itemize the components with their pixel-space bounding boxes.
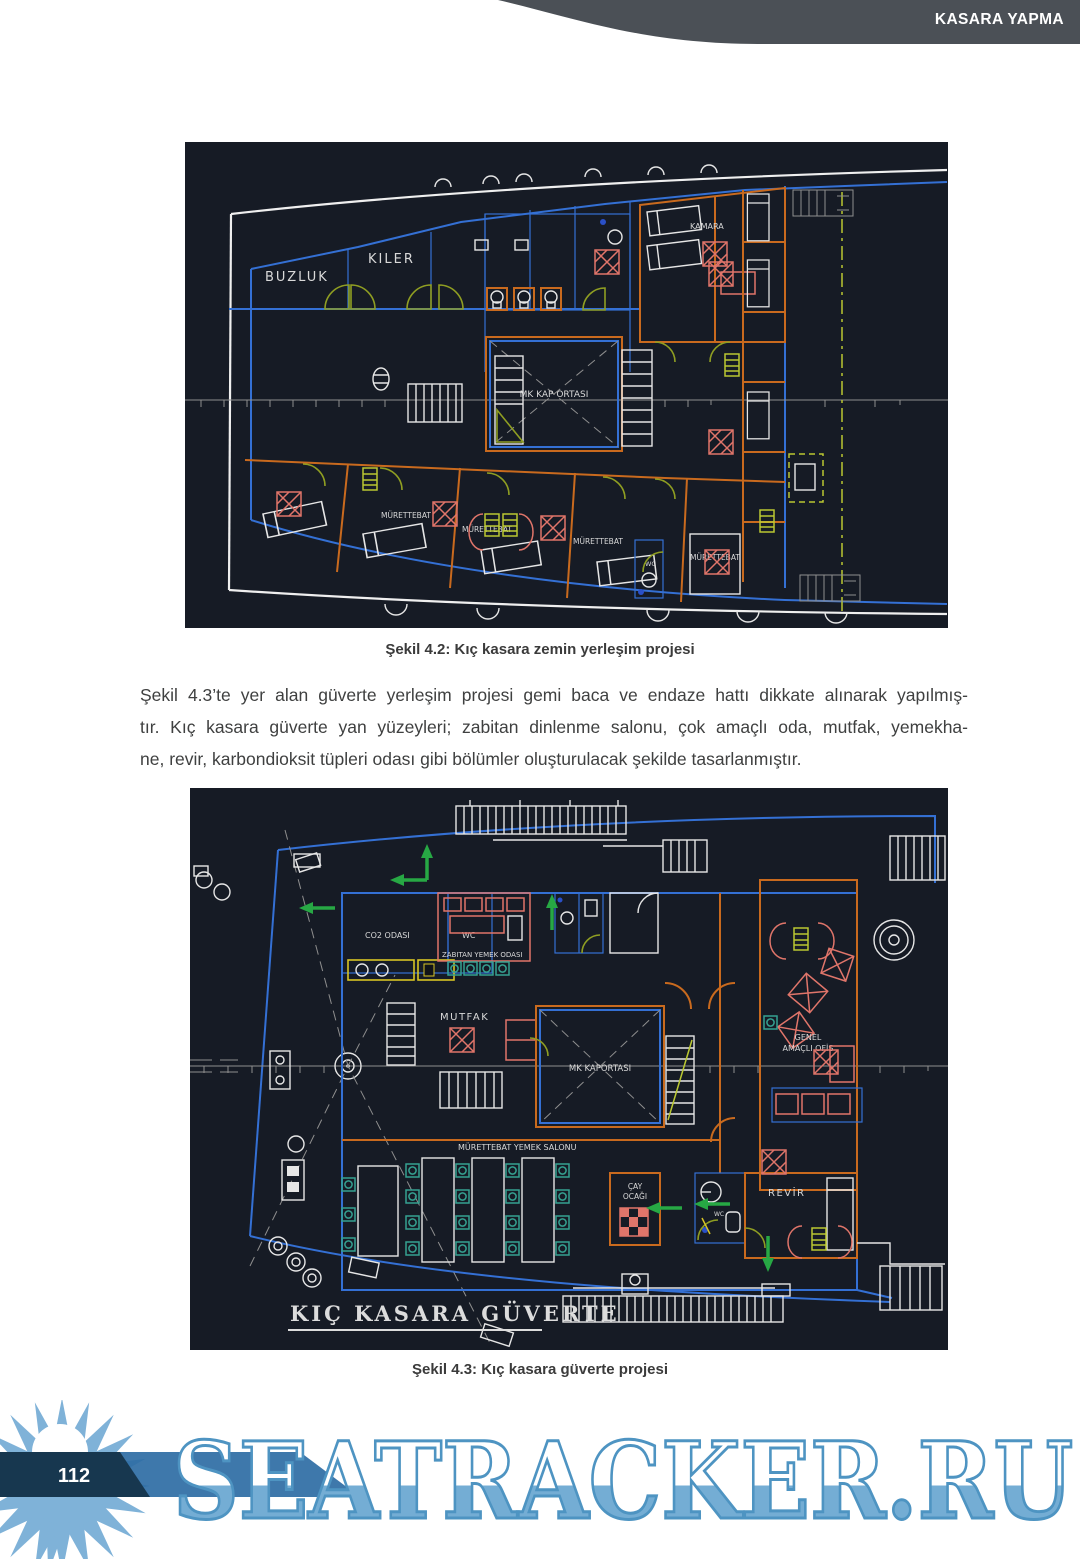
deckhouse: CO2 ODASI WC MUTFAK [342,880,862,1290]
mk-kaportasi-label: MK KAPORTASI [569,1064,631,1074]
corridor-doors [530,893,735,1173]
winch-circle [874,920,914,960]
murettebat-label-1: MÜRETTEBAT [381,511,431,520]
wc-small-label: WC [714,1211,724,1218]
open-deck-right [793,190,860,612]
kamara-label: KAMARA [690,222,724,231]
paragraph-line-2: tır. Kıç kasara güverte yan yüzeyleri; z… [140,711,968,743]
document-page: KASARA YAPMA [0,0,1080,1559]
fairlead-top [194,866,230,900]
sickbay: REVİR [745,1150,857,1258]
murettebat-label-3: MÜRETTEBAT [573,537,623,546]
zabitan-label: ZABITAN YEMEK ODASI [442,951,522,959]
corridor-doors [325,285,463,309]
paragraph-line-1: Şekil 4.3’te yer alan güverte yerleşim p… [140,679,968,711]
figure-4-2-drawing: BUZLUK KILER [185,142,948,628]
deck-title-text: KIÇ KASARA GÜVERTE [290,1301,620,1326]
hull-outline [250,816,935,1302]
co2-room-label: CO2 ODASI [365,931,410,940]
page-header-title: KASARA YAPMA [935,11,1064,29]
pilot-door-mark [789,454,823,502]
co2-room: CO2 ODASI [342,893,448,973]
toilet-icons [487,288,561,310]
body-paragraph: Şekil 4.3’te yer alan güverte yerleşim p… [140,679,968,775]
page-number: 112 [58,1465,90,1487]
deck-plan-title: KIÇ KASARA GÜVERTE [288,1301,620,1330]
top-right-hatch [663,840,707,872]
mk-kap-ortasi-label: MK KAP ORTASI [520,390,589,400]
sanitary-rooms [555,893,658,953]
kiler-label: KILER [368,252,415,267]
tea-label-1: ÇAY [628,1182,643,1191]
casing-stairs [666,1036,694,1124]
centerline [185,400,948,407]
crew-mess: MÜRETTEBAT YEMEK SALONU [342,1140,720,1262]
zabitan-mess: ZABITAN YEMEK ODASI [438,893,530,975]
figure-4-3-drawing: CO2 ODASI WC MUTFAK [190,788,948,1350]
watermark: SEATRACKER.RU [168,1420,1080,1542]
cleat-mid [270,1051,290,1089]
sickbay-label: REVİR [768,1186,806,1199]
wc-room-small: WC [695,1173,745,1243]
deck-hatch-top [793,190,853,216]
office-label-1: GENEL [795,1033,822,1042]
room-kiler: KILER [368,252,415,267]
far-right-ladder [890,836,945,880]
paragraph-line-3: ne, revir, karbondioksit tüpleri odası g… [140,743,968,775]
crew-cabins: MÜRETTEBAT MÜRETTEBAT MÜRETTEBAT MÜRETTE… [245,460,785,602]
watermark-text: SEATRACKER.RU [173,1420,1073,1542]
stern-platform [857,1243,945,1310]
bathroom-block [475,206,630,310]
engine-casing: MK KAP ORTASI [486,337,652,451]
office: GENEL AMAÇLI OFİS [760,880,862,1190]
top-railing [456,800,945,880]
deck-hatch-bottom [800,575,860,601]
office-label-2: AMAÇLI OFİS [783,1043,834,1053]
bollard-lower [282,1160,304,1200]
room-buzluk: BUZLUK [265,270,329,285]
right-cabin-column [709,190,823,582]
buzluk-label: BUZLUK [265,270,329,285]
figure-4-2-caption: Şekil 4.2: Kıç kasara zemin yerleşim pro… [0,641,1080,658]
mutfak-label: MUTFAK [440,1012,489,1023]
header-band [0,0,1080,56]
crew-mess-label: MÜRETTEBAT YEMEK SALONU [458,1142,577,1152]
rings-bottom [269,1237,321,1287]
tea-label-2: OCAĞI [623,1192,647,1201]
bottom-railing [563,1243,945,1322]
left-stairs [373,368,462,422]
figure-4-3-caption: Şekil 4.3: Kıç kasara güverte projesi [0,1361,1080,1378]
casing-right-stairs [622,350,652,446]
